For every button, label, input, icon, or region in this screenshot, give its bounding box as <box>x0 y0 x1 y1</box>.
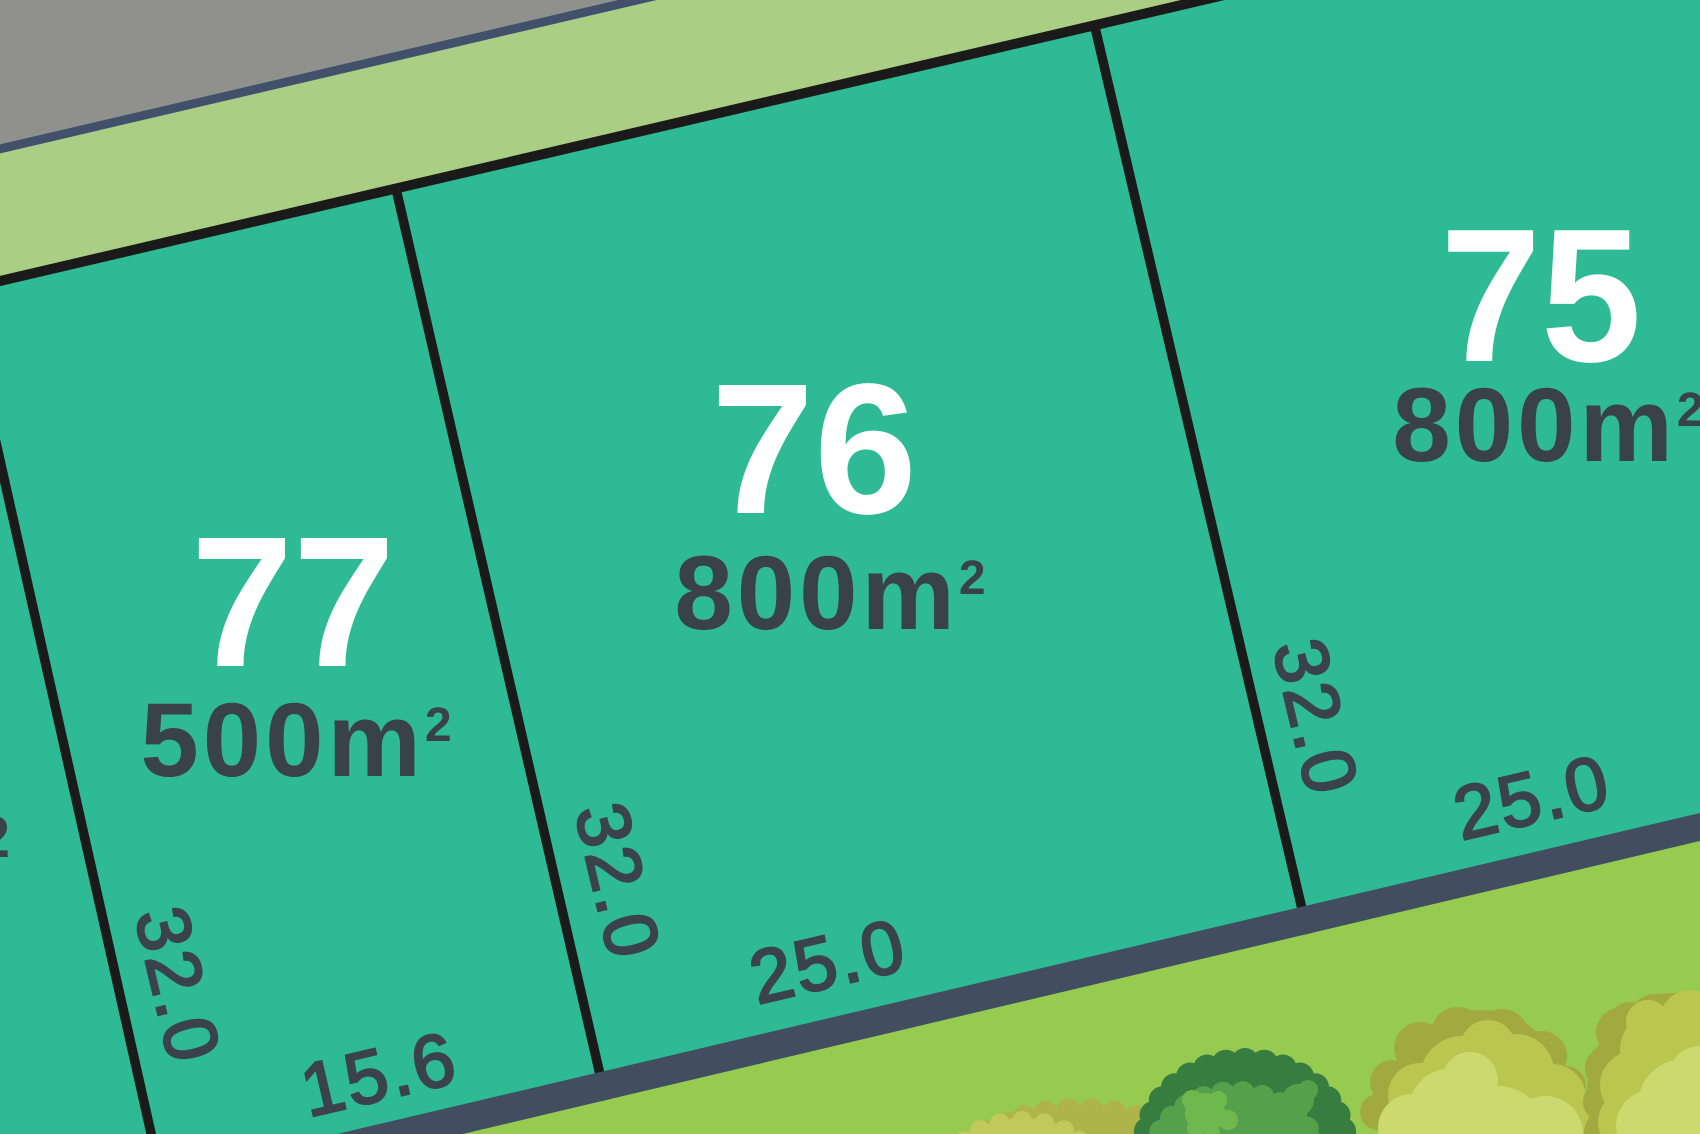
svg-text:76: 76 <box>711 346 917 553</box>
svg-text:500m2: 500m2 <box>140 682 455 799</box>
svg-text:2: 2 <box>0 805 14 870</box>
svg-text:77: 77 <box>191 499 395 706</box>
svg-text:800m2: 800m2 <box>1392 367 1700 484</box>
svg-text:800m2: 800m2 <box>674 535 989 652</box>
